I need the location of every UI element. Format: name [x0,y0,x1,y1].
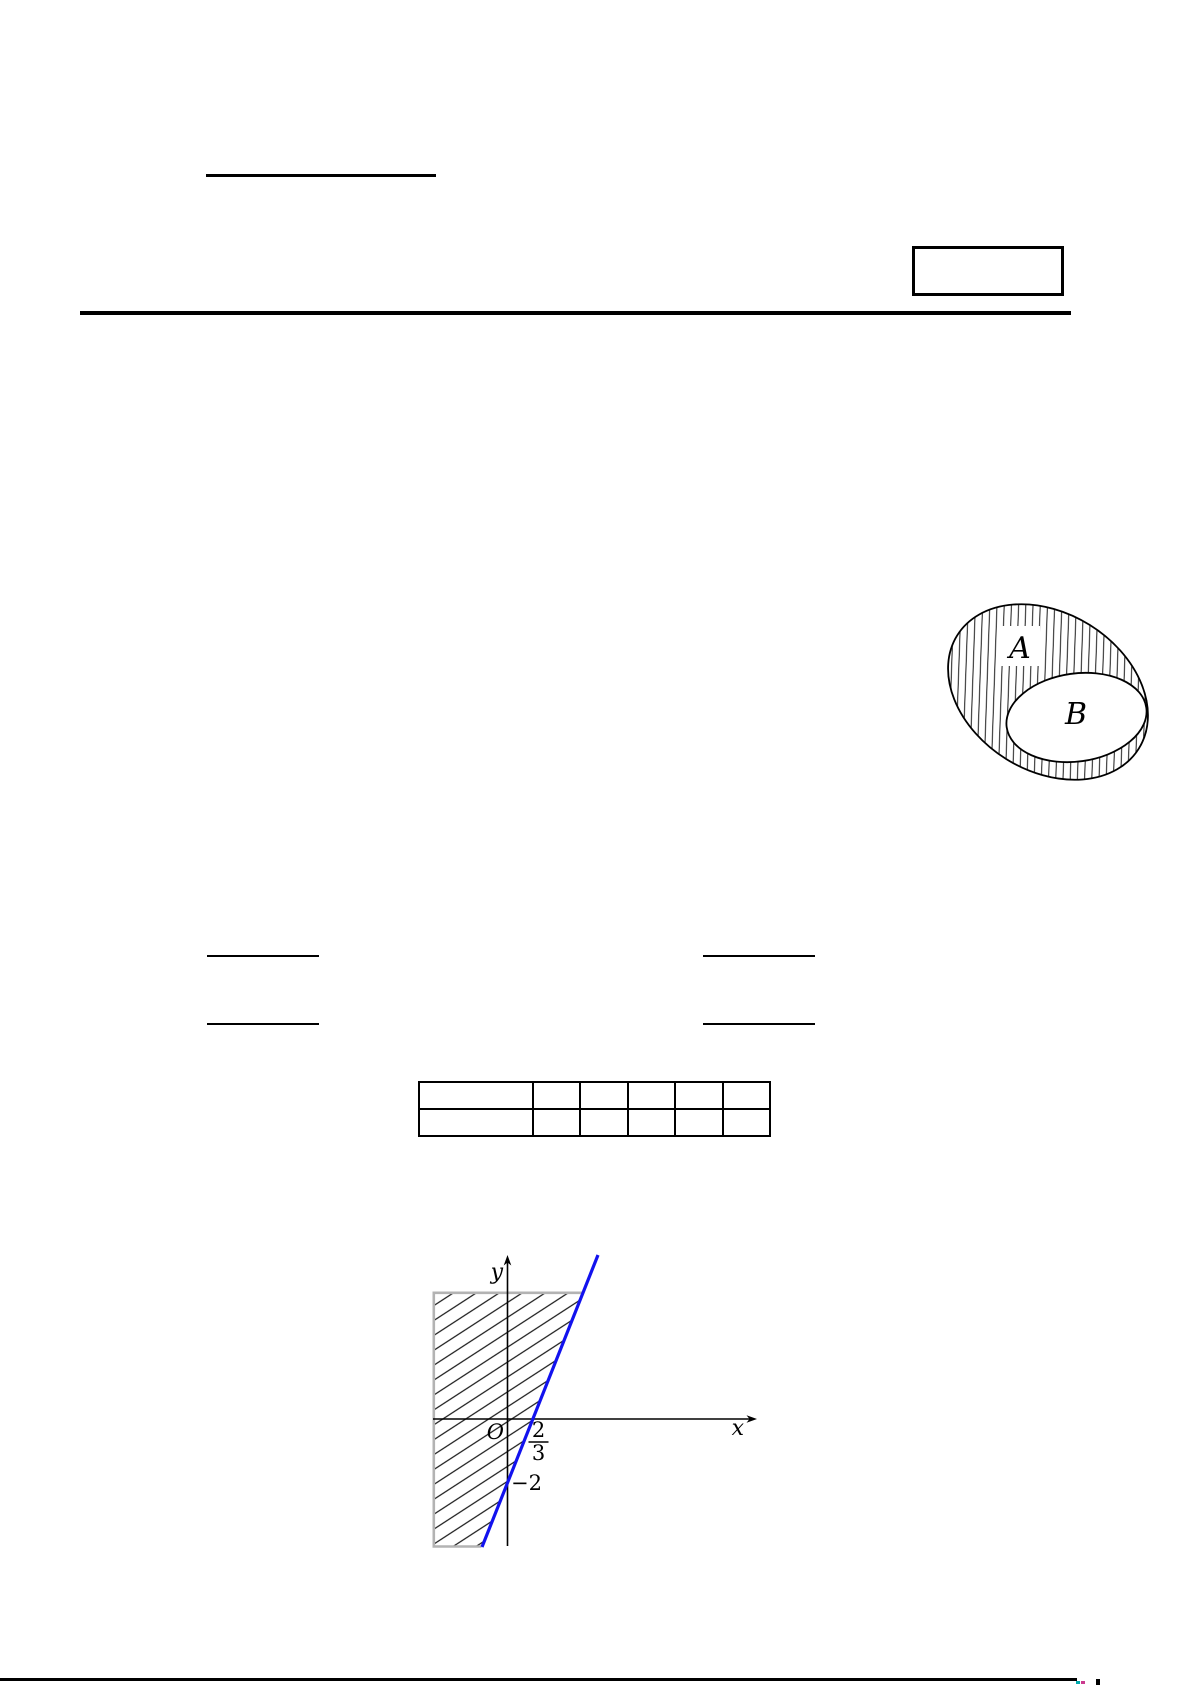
footer-mark-cyan [1076,1681,1080,1684]
x-intercept-denominator: 3 [532,1441,545,1465]
venn-figure: A B [900,580,1180,800]
table-cell [580,1082,627,1109]
graph-figure: y x O 2 3 −2 [400,1230,790,1570]
y-axis-label: y [490,1260,504,1285]
answer-blank-4 [703,1023,815,1025]
table-row [419,1109,770,1136]
name-blank-line [206,174,436,177]
table-cell [628,1082,675,1109]
answer-blank-2 [703,955,815,957]
table-cell [675,1082,722,1109]
venn-label-a: A [1006,631,1031,666]
table-cell [533,1109,580,1136]
x-intercept-numerator: 2 [532,1418,545,1442]
table-row [419,1082,770,1109]
answer-blank-1 [207,955,319,957]
score-box [912,246,1064,296]
footer-mark-black [1096,1679,1100,1685]
answer-blank-3 [207,1023,319,1025]
x-axis-label: x [732,1416,745,1441]
table-cell [580,1109,627,1136]
table-cell [419,1109,533,1136]
table-cell [533,1082,580,1109]
answer-table [418,1081,771,1137]
venn-label-b: B [1064,697,1087,732]
table-cell [723,1109,770,1136]
table-cell [419,1082,533,1109]
footer-mark-magenta [1081,1681,1085,1684]
footer-rule [0,1678,1077,1681]
document-page: A B [0,0,1192,1685]
table-cell [723,1082,770,1109]
header-rule [80,311,1071,315]
table-cell [675,1109,722,1136]
table-cell [628,1109,675,1136]
origin-label: O [487,1420,504,1444]
y-intercept-label: −2 [511,1471,542,1495]
